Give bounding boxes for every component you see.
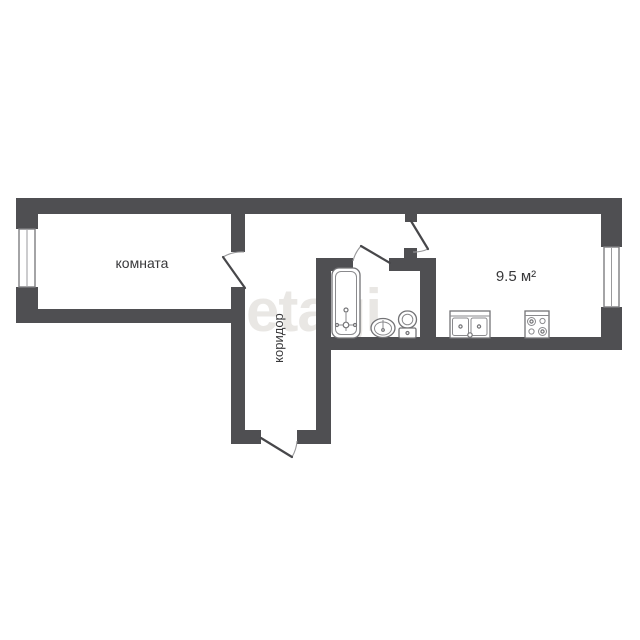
left-window-icon xyxy=(19,229,35,287)
wall-corridor-right xyxy=(316,258,331,444)
kitchen-sink-drain-right xyxy=(477,325,480,328)
bathroom-door-arc xyxy=(353,246,361,261)
toilet-icon xyxy=(399,311,417,338)
stove-burner-tl-inner xyxy=(530,320,533,323)
bathroom-door-leaf xyxy=(361,246,390,263)
wall-entry-stub-left xyxy=(231,430,261,444)
wall-corridor-left xyxy=(231,287,245,444)
room-door-leaf xyxy=(223,257,245,288)
entrance-door-leaf xyxy=(261,438,292,457)
bathtub-drain xyxy=(344,308,348,312)
wall-right-lower xyxy=(601,307,622,350)
wall-bottom xyxy=(316,337,622,350)
kitchen-door-leaf xyxy=(411,221,428,249)
wall-left-upper xyxy=(16,198,38,229)
kitchen-area-label: 9.5 м² xyxy=(496,268,536,285)
kitchen-sink-icon xyxy=(450,311,490,338)
bathtub-icon xyxy=(332,268,360,338)
wall-entry-stub-right xyxy=(297,430,331,444)
room-door-arc xyxy=(223,252,244,257)
room-label: комната xyxy=(116,255,169,271)
room-door xyxy=(223,252,245,288)
kitchen-door xyxy=(411,221,428,252)
toilet-seat-outer xyxy=(399,311,417,328)
wall-bathroom-kitchen xyxy=(420,258,436,350)
kitchen-sink-drain-left xyxy=(459,325,462,328)
bathtub-faucet-left xyxy=(336,324,339,327)
wall-room-right-upper xyxy=(231,214,245,252)
bathtub-faucet-center xyxy=(343,322,349,328)
floorplan-canvas: etagi xyxy=(0,0,640,640)
bathtub-faucet-right xyxy=(354,324,357,327)
toilet-button xyxy=(406,332,409,335)
wall-bathroom-top-right xyxy=(389,258,420,271)
stove-burner-br-inner xyxy=(541,330,544,333)
wall-room-bottom xyxy=(16,309,245,323)
washbasin-drain xyxy=(382,329,385,332)
wall-bathroom-corner-stub xyxy=(404,248,417,258)
stove-icon xyxy=(525,311,549,338)
kitchen-sink-faucet xyxy=(468,333,472,337)
wall-top xyxy=(16,198,622,214)
entrance-door-arc xyxy=(292,441,297,457)
washbasin-icon xyxy=(371,319,395,338)
wall-right-upper xyxy=(601,198,622,247)
right-window-icon xyxy=(604,247,619,307)
corridor-label: коридор xyxy=(271,313,286,363)
watermark: etagi xyxy=(246,277,381,344)
bathroom-door xyxy=(353,246,390,263)
floorplan-page: etagi xyxy=(0,0,640,640)
entrance-door xyxy=(261,438,297,457)
